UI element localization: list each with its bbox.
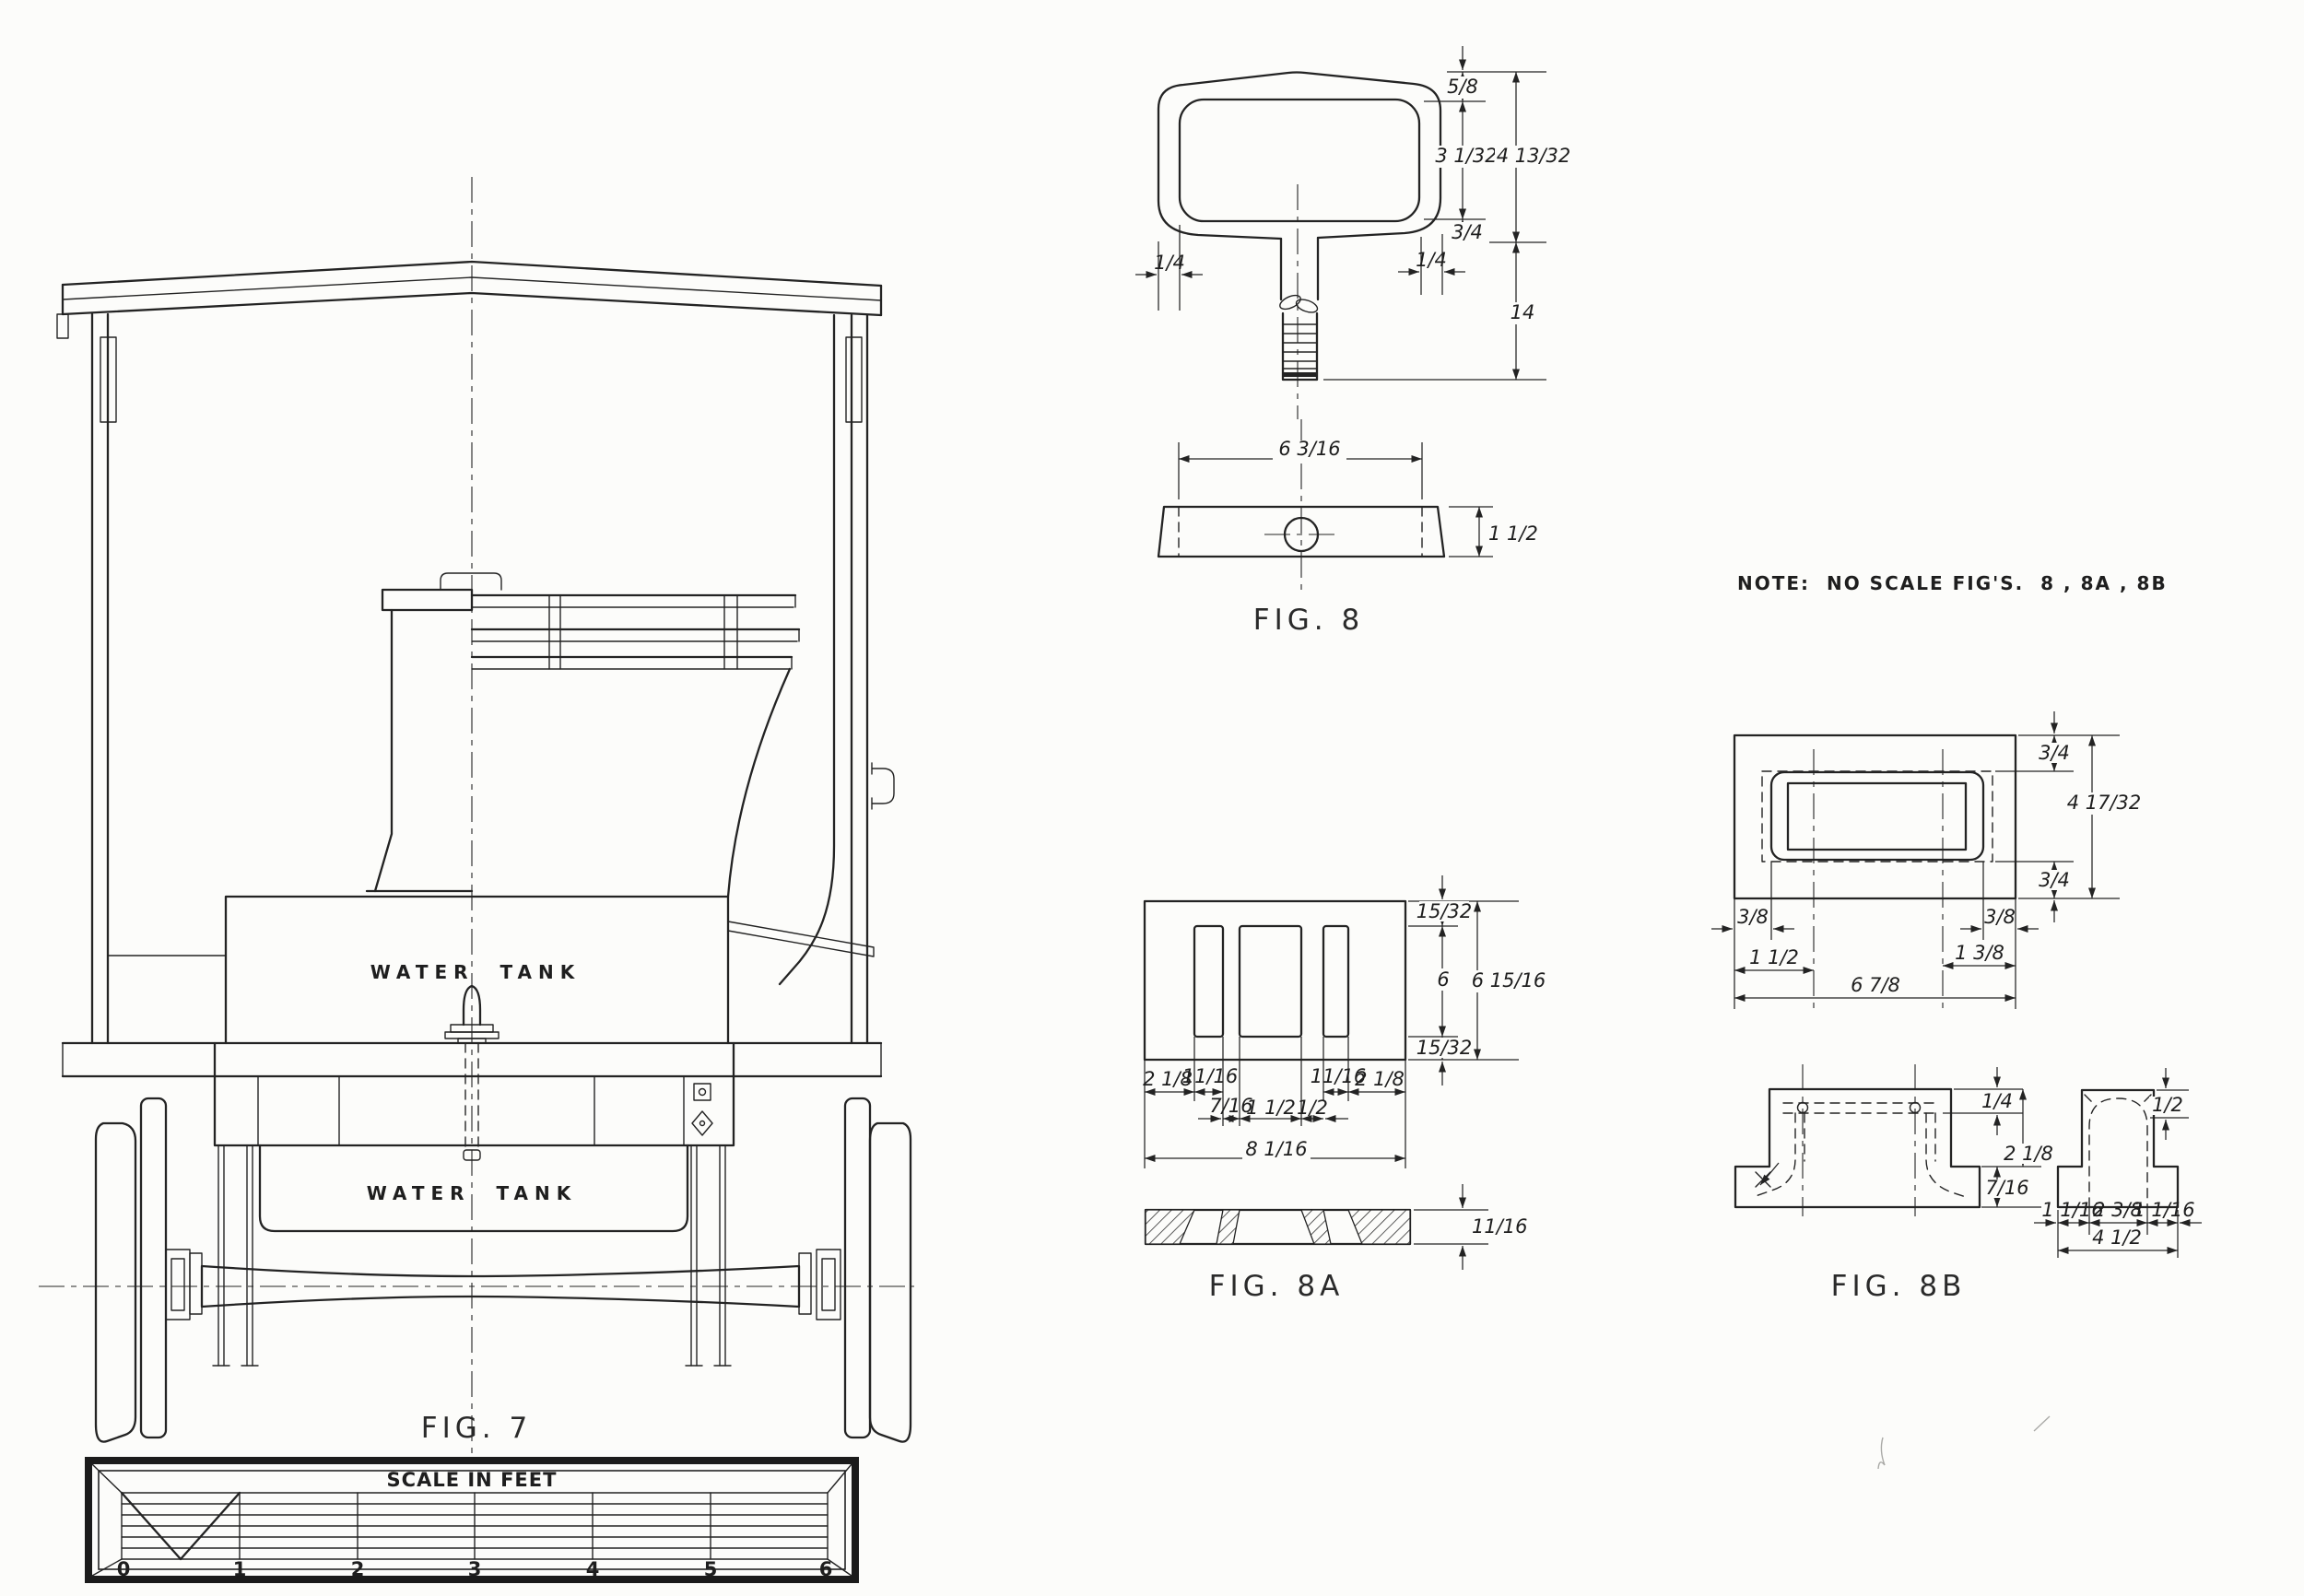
fig8b-end-view: 1/2 1 1/16 2 3/8 1 1/16 4 1/2 — [2034, 1068, 2202, 1258]
dim-plan-depth: 1 1/2 — [1488, 522, 1538, 545]
scale-tick-4: 4 — [586, 1558, 600, 1580]
right-wheel — [870, 1123, 911, 1442]
fig8a-section: 11/16 — [1146, 1184, 1528, 1270]
handle-threads — [1283, 313, 1317, 380]
dim-overall-height: 4 17/32 — [2067, 792, 2142, 814]
fig8b-label: FIG. 8B — [1831, 1270, 1967, 1303]
left-wheel — [96, 1123, 135, 1442]
dim-right-margin: 2 1/8 — [1355, 1068, 1405, 1090]
scale-tick-3: 3 — [468, 1558, 482, 1580]
stray-smudge — [1878, 1438, 1885, 1469]
dim-head-overall-height: 4 13/32 — [1497, 145, 1571, 167]
dim-right-wall-thickness: 1/4 — [1416, 249, 1447, 271]
dim-center-slot-width: 1 1/2 — [1246, 1097, 1296, 1119]
fig8-plan-view: 6 3/16 1 1/2 — [1158, 419, 1538, 594]
fig7-side-posts — [92, 314, 867, 1043]
dim-top-margin: 15/32 — [1416, 900, 1473, 922]
dim-top-margin: 3/4 — [2039, 742, 2070, 764]
dim-plan-length: 6 3/16 — [1278, 438, 1340, 460]
fig7-chimney — [367, 573, 501, 891]
x-mark — [1756, 1172, 1770, 1187]
center-slot — [1240, 926, 1301, 1037]
dim-overall-height: 6 15/16 — [1472, 969, 1546, 992]
fig8a-dimensions: 15/32 6 15/32 6 15/16 2 1/8 11/16 11/16 … — [1143, 875, 1546, 1168]
dim-right-hole-offset: 1 3/8 — [1955, 942, 2004, 964]
scale-tick-5: 5 — [704, 1558, 718, 1580]
dim-left-edge-margin: 3/8 — [1737, 906, 1769, 928]
no-scale-note: NOTE: NO SCALE FIG'S. 8 , 8A , 8B — [1737, 572, 2168, 594]
scale-bar-grid — [122, 1493, 828, 1559]
dim-grip-bottom-thickness: 3/4 — [1452, 221, 1483, 243]
dim-lip-depth: 1/2 — [2152, 1094, 2183, 1116]
left-wheel-plate — [141, 1098, 166, 1438]
dim-slot-height: 6 — [1437, 968, 1449, 991]
dim-right-web: 1/2 — [1297, 1097, 1328, 1119]
scale-tick-0: 0 — [117, 1558, 131, 1580]
scale-tick-2: 2 — [351, 1558, 365, 1580]
handle-stem — [1281, 238, 1318, 299]
right-wheel-plate — [845, 1098, 870, 1438]
dim-grip-opening-height: 3 1/32 — [1435, 145, 1497, 167]
upper-water-tank-label: WATER TANK — [370, 961, 582, 983]
lower-water-tank-label: WATER TANK — [367, 1182, 578, 1204]
dim-base-overall: 4 1/2 — [2092, 1226, 2142, 1249]
dim-section-thickness: 11/16 — [1472, 1215, 1528, 1238]
fig7-end-elevation: WATER TANK WATER TANK — [39, 177, 914, 1458]
left-slot — [1194, 926, 1223, 1037]
fig8-label: FIG. 8 — [1253, 604, 1364, 637]
fig8-dimensions: 5/8 3 1/32 3/4 4 13/32 14 1/4 1/4 — [1135, 46, 1574, 380]
technical-drawing: WATER TANK WATER TANK — [0, 0, 2304, 1596]
dim-body-height: 2 1/8 — [2004, 1143, 2053, 1165]
dim-base-height: 7/16 — [1985, 1177, 2028, 1199]
handle-outer-outline — [1158, 73, 1440, 240]
fig8-handle: 5/8 3 1/32 3/4 4 13/32 14 1/4 1/4 — [1135, 46, 1574, 637]
scale-bar: SCALE IN FEET 0 1 2 3 4 5 6 — [88, 1461, 855, 1580]
fig7-tank-bands — [472, 595, 799, 897]
fig7-roof — [57, 262, 881, 338]
dim-overall-width: 8 1/16 — [1245, 1138, 1307, 1160]
scale-tick-1: 1 — [233, 1558, 247, 1580]
fig8a-slotted-plate: 15/32 6 15/32 6 15/16 2 1/8 11/16 11/16 … — [1143, 875, 1546, 1303]
dim-plate-thickness: 1/4 — [1981, 1090, 2013, 1112]
fig7-label: FIG. 7 — [421, 1412, 532, 1445]
handrail-pipe — [780, 315, 834, 984]
dim-bottom-margin: 3/4 — [2039, 869, 2070, 891]
fig8a-label: FIG. 8A — [1209, 1270, 1345, 1303]
fig8b-front-elevation: 1/4 2 1/8 7/16 — [1735, 1064, 2055, 1216]
right-slot — [1323, 926, 1348, 1037]
dim-right-edge-margin: 3/8 — [1984, 906, 2016, 928]
tank-side-curve — [728, 669, 790, 897]
dim-left-slot-width: 11/16 — [1182, 1065, 1239, 1087]
dim-overall-length: 14 — [1511, 301, 1535, 323]
dim-left-hole-offset: 1 1/2 — [1749, 946, 1799, 968]
scale-bar-title: SCALE IN FEET — [387, 1469, 558, 1491]
fig8b-chair-block: 3/4 4 17/32 3/4 3/8 3/8 1 1/2 1 3/8 6 7/… — [1711, 711, 2202, 1303]
fig8b-top-view: 3/4 4 17/32 3/4 3/8 3/8 1 1/2 1 3/8 6 7/… — [1711, 711, 2144, 1009]
handle-grip-opening — [1180, 100, 1419, 221]
drawing-sheet: WATER TANK WATER TANK — [0, 0, 2304, 1596]
dim-base-right: 1 1/16 — [2133, 1199, 2194, 1221]
dim-bottom-margin: 15/32 — [1416, 1037, 1473, 1059]
dim-grip-top-thickness: 5/8 — [1447, 76, 1478, 98]
dim-left-wall-thickness: 1/4 — [1154, 252, 1185, 274]
door-handle — [872, 763, 894, 809]
dim-overall-width: 6 7/8 — [1851, 974, 1900, 996]
scale-tick-6: 6 — [819, 1558, 833, 1580]
stray-mark — [2034, 1416, 2050, 1431]
